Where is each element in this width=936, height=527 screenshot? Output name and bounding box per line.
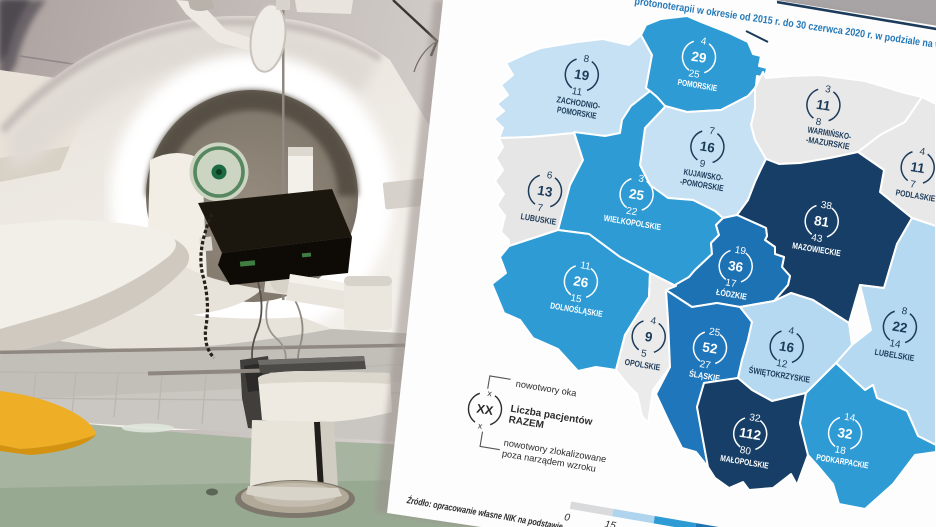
svg-text:52: 52 bbox=[701, 339, 718, 356]
svg-text:15: 15 bbox=[604, 519, 617, 527]
svg-text:25: 25 bbox=[708, 326, 721, 339]
svg-text:36: 36 bbox=[727, 258, 745, 275]
svg-text:19: 19 bbox=[573, 66, 590, 83]
svg-text:16: 16 bbox=[699, 138, 717, 155]
svg-text:22: 22 bbox=[891, 319, 908, 336]
svg-text:25: 25 bbox=[628, 186, 646, 203]
svg-text:38: 38 bbox=[820, 200, 833, 213]
svg-text:11: 11 bbox=[815, 97, 832, 114]
svg-text:81: 81 bbox=[813, 213, 831, 230]
svg-text:14: 14 bbox=[843, 412, 856, 425]
svg-text:13: 13 bbox=[536, 183, 554, 200]
svg-text:32: 32 bbox=[748, 412, 761, 425]
svg-text:29: 29 bbox=[690, 49, 707, 66]
svg-text:32: 32 bbox=[836, 425, 853, 442]
svg-text:19: 19 bbox=[734, 245, 747, 258]
svg-text:11: 11 bbox=[909, 159, 926, 176]
svg-text:16: 16 bbox=[778, 338, 796, 355]
svg-text:XX: XX bbox=[475, 402, 494, 419]
svg-text:26: 26 bbox=[572, 273, 590, 290]
